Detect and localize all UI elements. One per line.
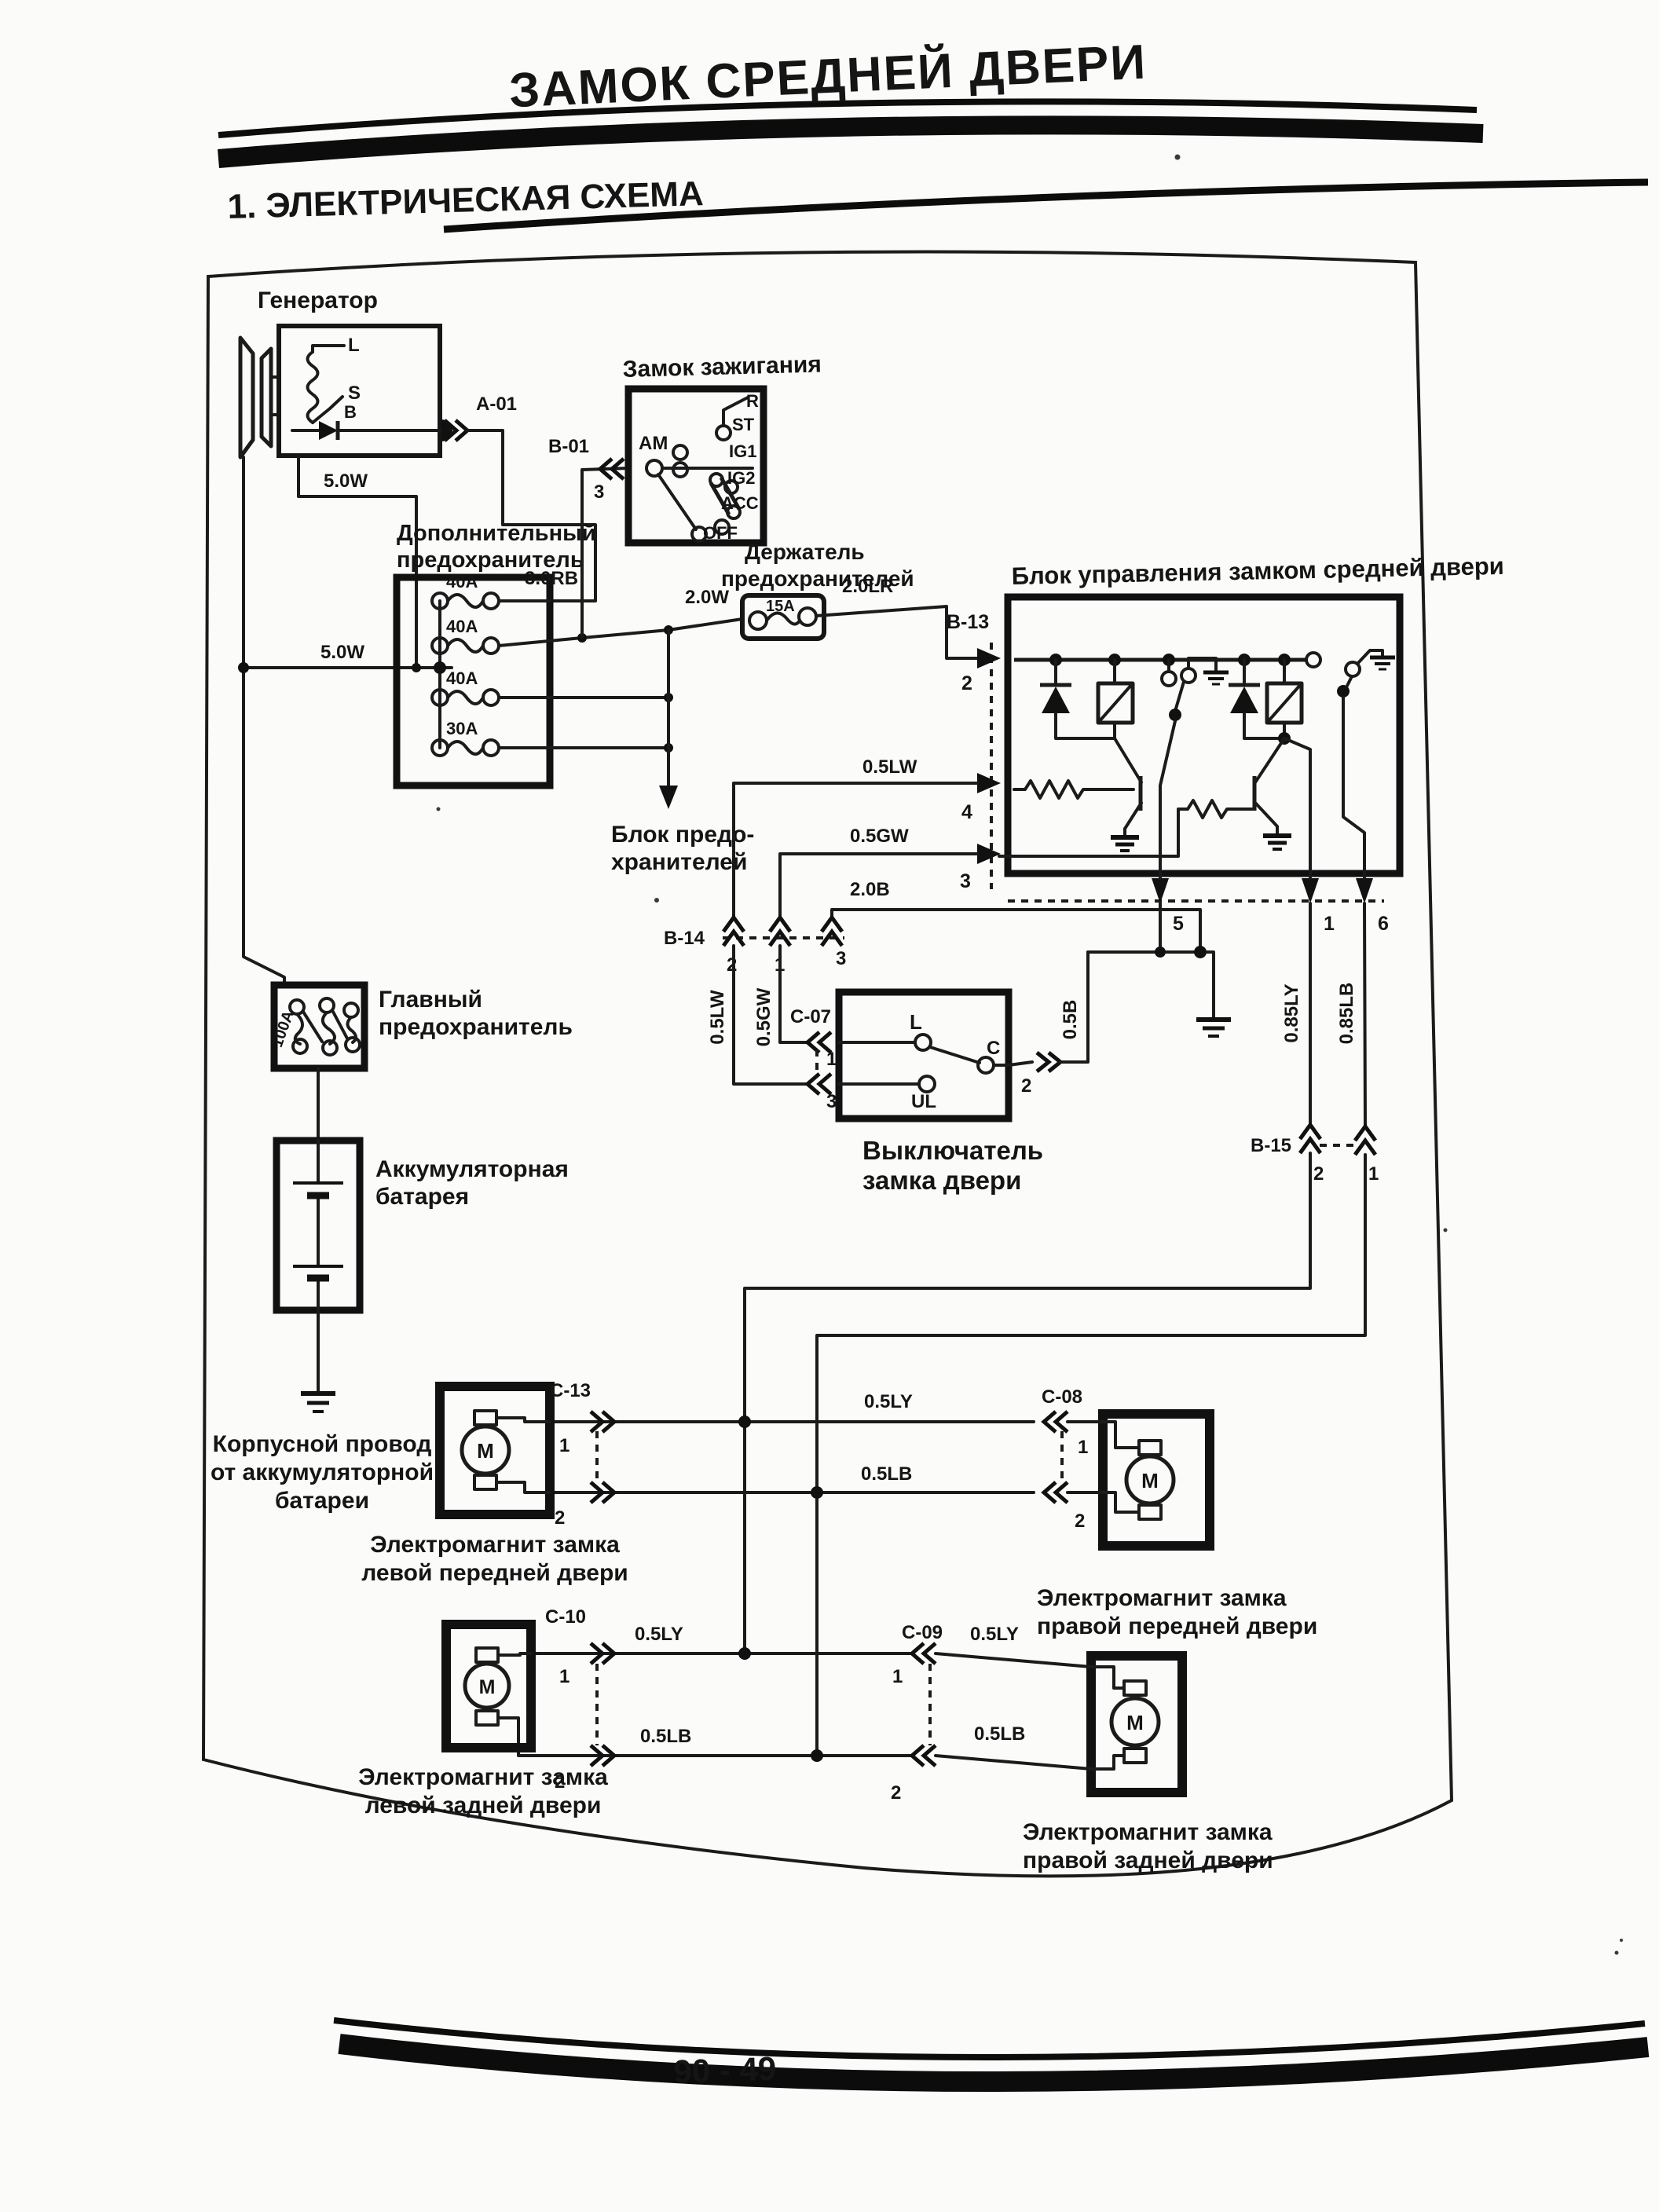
- relay-coil-icon: [1098, 660, 1133, 738]
- c10-pin1: 1: [559, 1666, 569, 1687]
- wire-0_5ly-label-br: 0.5LY: [970, 1624, 1019, 1645]
- c10-label: C-10: [545, 1606, 586, 1628]
- wire-3_0rb-label: 3.0RB: [525, 568, 578, 589]
- solenoid-lf-label-1: Электромагнит замка: [370, 1532, 620, 1558]
- motor-m: M: [1126, 1711, 1144, 1734]
- ignition-ig2: IG2: [727, 468, 755, 488]
- solenoid-lr-label-1: Электромагнит замка: [358, 1764, 608, 1790]
- ground-node: [1088, 903, 1231, 1036]
- diode-icon: [1040, 660, 1115, 738]
- generator-label: Генератор: [258, 287, 378, 313]
- pulley-icon: [240, 338, 279, 457]
- additional-fuse-block: Дополнительный предохранитель 40A 40A 40…: [397, 521, 596, 786]
- ignition-ig1: IG1: [729, 441, 756, 461]
- terminal-s: S: [348, 383, 361, 404]
- wire-0_85ly-label: 0.85LY: [1281, 983, 1302, 1042]
- wire-0_5lw-label-v: 0.5LW: [707, 990, 728, 1045]
- c13-connector: C-13 1 2: [550, 1380, 614, 1529]
- b15-pin2: 2: [1313, 1163, 1324, 1185]
- ignition-r: R: [746, 391, 759, 411]
- wire-0_5gw-label-v: 0.5GW: [753, 987, 775, 1046]
- transistor-icon: [999, 738, 1291, 856]
- wire-2_0lr-label: 2.0LR: [842, 576, 893, 597]
- fuse-block-ref-2: хранителей: [611, 849, 747, 875]
- battery-label-1: Аккумуляторная: [375, 1156, 569, 1182]
- ground-icon: [1196, 1020, 1231, 1036]
- solenoid-left-rear: M C-10 1 2 Электромагнит замка левой зад…: [358, 1606, 614, 1818]
- b13-label: B-13: [947, 611, 989, 633]
- b14-label: B-14: [664, 928, 705, 949]
- additional-fuse-label-1: Дополнительный: [397, 521, 596, 546]
- battery-cells-icon: [293, 1141, 343, 1310]
- relay-contact-icon: [1160, 658, 1229, 878]
- main-fuse: 100A Главный предохранитель: [269, 985, 573, 1141]
- ignition-am: AM: [639, 433, 668, 454]
- b15-label: B-15: [1251, 1135, 1291, 1156]
- motor-icon: M: [462, 1411, 550, 1492]
- wire-2_0w-run: [499, 468, 742, 809]
- b15-pin1: 1: [1368, 1163, 1379, 1185]
- c09-pin1: 1: [892, 1666, 903, 1687]
- wire-0_5lb-label-top: 0.5LB: [861, 1463, 912, 1485]
- c09-pin2: 2: [891, 1782, 901, 1804]
- b13-pin4: 4: [961, 801, 972, 823]
- b15-connector: B-15 2 1: [1251, 1125, 1379, 1185]
- motor-m: M: [477, 1439, 494, 1463]
- c13-pin2: 2: [555, 1507, 565, 1529]
- door-switch-label-2: замка двери: [862, 1166, 1021, 1195]
- control-unit-circuit: [999, 650, 1395, 878]
- b13-pin3: 3: [960, 870, 971, 892]
- ignition-st: ST: [732, 415, 755, 434]
- main-fuse-label-1: Главный: [379, 987, 482, 1013]
- b01-pin3: 3: [594, 482, 604, 503]
- c09-connector: C-09 1 2: [891, 1622, 943, 1804]
- c08-connector: C-08 1 2: [1042, 1386, 1088, 1532]
- wire-0_5ly-label-top: 0.5LY: [864, 1391, 913, 1412]
- body-ground-label-2: от аккумуляторной: [211, 1459, 434, 1485]
- fuse-rating: 30A: [446, 719, 478, 738]
- wire-0_5lw-label: 0.5LW: [862, 756, 917, 778]
- door-switch-label-1: Выключатель: [862, 1136, 1043, 1165]
- a01-connector-icon: [441, 419, 467, 441]
- terminal-l: L: [348, 335, 360, 356]
- control-unit: Блок управления замком средней двери B-1…: [947, 552, 1504, 935]
- ignition-label: Замок зажигания: [622, 351, 822, 383]
- solenoid-right-front: C-08 1 2 M Электромагнит замка правой пе…: [1037, 1386, 1317, 1639]
- ignition-switch: Замок зажигания AM R ST IG1 IG2 ACC OFF: [622, 351, 822, 543]
- coil-icon: [308, 346, 345, 423]
- fuse-40a-2: 40A: [432, 617, 499, 654]
- ground-icon: [301, 1393, 335, 1412]
- motor-m: M: [479, 1676, 496, 1698]
- solenoid-rf-label-2: правой передней двери: [1037, 1613, 1317, 1639]
- motor-m: M: [1141, 1469, 1159, 1492]
- c09-label: C-09: [902, 1622, 943, 1643]
- motor-icon: M: [465, 1648, 531, 1725]
- body-ground-label-1: Корпусной провод: [213, 1431, 432, 1457]
- manual-page: ЗАМОК СРЕДНЕЙ ДВЕРИ 1. ЭЛЕКТРИЧЕСКАЯ СХЕ…: [0, 0, 1659, 2212]
- motor-icon: M: [936, 1654, 1159, 1769]
- c13-label: C-13: [550, 1380, 591, 1401]
- b14-pin2: 2: [727, 954, 737, 976]
- c08-pin1: 1: [1078, 1437, 1088, 1458]
- wiring-diagram: ЗАМОК СРЕДНЕЙ ДВЕРИ 1. ЭЛЕКТРИЧЕСКАЯ СХЕ…: [0, 0, 1659, 2212]
- b13-pin5: 5: [1173, 913, 1184, 935]
- fuse-rating: 40A: [446, 617, 478, 636]
- wire-0_85lb-label: 0.85LB: [1336, 983, 1357, 1045]
- wire-0_5gw-label: 0.5GW: [850, 826, 909, 847]
- b13-pin1: 1: [1324, 913, 1335, 935]
- battery-label-2: батарея: [375, 1184, 469, 1210]
- solenoid-lf-label-2: левой передней двери: [361, 1560, 628, 1586]
- c07-pin1: 1: [826, 1049, 837, 1070]
- b13-pin6: 6: [1378, 913, 1389, 935]
- b14-wiring: 0.5LW 0.5GW 2.0B B-14 2 1 3 0.5LW 0.5GW: [664, 756, 1200, 1084]
- ignition-off: OFF: [703, 523, 738, 543]
- c07-pin2: 2: [1021, 1075, 1031, 1097]
- c13-pin1: 1: [559, 1435, 569, 1456]
- fuse-40a-3: 40A: [432, 668, 499, 705]
- scan-specks: [437, 155, 1624, 1955]
- wire-0_5lb-label-bl: 0.5LB: [640, 1726, 691, 1747]
- wire-5_0w-label-1: 5.0W: [324, 471, 368, 492]
- wire-0_5b-label: 0.5B: [1060, 1000, 1081, 1040]
- transistor-icon: [1014, 776, 1141, 851]
- switch-terminal-c: C: [987, 1038, 1000, 1059]
- solenoid-rr-label-1: Электромагнит замка: [1023, 1819, 1273, 1845]
- b01-label: B-01: [548, 436, 589, 457]
- page-number: 90 - 49: [673, 2049, 777, 2090]
- solenoid-rf-label-1: Электромагнит замка: [1037, 1585, 1287, 1611]
- fuse-30a: 30A: [432, 719, 499, 756]
- relay-coil-icon: [1267, 660, 1302, 738]
- wire-5_0w-label-2: 5.0W: [320, 642, 364, 663]
- c08-label: C-08: [1042, 1386, 1082, 1408]
- wire-0_5lb-label-br: 0.5LB: [974, 1723, 1025, 1745]
- wire-0_5ly-label-bl: 0.5LY: [635, 1624, 683, 1645]
- fuse-rating: 40A: [446, 572, 478, 591]
- b14-pin3: 3: [836, 948, 846, 969]
- fusible-links-icon: 100A: [269, 998, 360, 1055]
- switch-terminal-l: L: [910, 1010, 922, 1034]
- c08-pin2: 2: [1075, 1511, 1085, 1532]
- b14-connector: B-14 2 1 3: [664, 917, 846, 976]
- battery: Аккумуляторная батарея Корпусной провод …: [211, 1141, 569, 1514]
- solenoid-lr-label-2: левой задней двери: [365, 1793, 602, 1818]
- control-unit-label: Блок управления замком средней двери: [1011, 552, 1504, 590]
- diode-icon: [1229, 660, 1284, 738]
- diode-icon: [292, 421, 440, 440]
- terminal-b: B: [344, 402, 357, 422]
- body-ground-label-3: батареи: [275, 1488, 369, 1514]
- fuse-rating: 40A: [446, 668, 478, 688]
- solenoid-rr-label-2: правой задней двери: [1023, 1848, 1273, 1873]
- ignition-acc: ACC: [721, 493, 759, 513]
- relay-contact-icon: [1337, 650, 1395, 878]
- b13-pin2: 2: [961, 672, 972, 694]
- switch-terminal-ul: UL: [911, 1091, 936, 1112]
- solenoid-right-rear: C-09 1 2 M Электромагнит замка правой за…: [891, 1622, 1273, 1873]
- wire-2_0b-label: 2.0B: [850, 879, 890, 900]
- main-fuse-label-2: предохранитель: [379, 1014, 573, 1040]
- bottom-rules: [334, 2020, 1648, 2082]
- c07-pin3: 3: [826, 1091, 837, 1112]
- c07-label: C-07: [790, 1006, 831, 1027]
- door-lock-switch: L C UL Выключатель замка двери: [839, 992, 1043, 1195]
- a01-label: A-01: [476, 394, 517, 415]
- fuse-holder-label-1: Держатель: [745, 540, 865, 564]
